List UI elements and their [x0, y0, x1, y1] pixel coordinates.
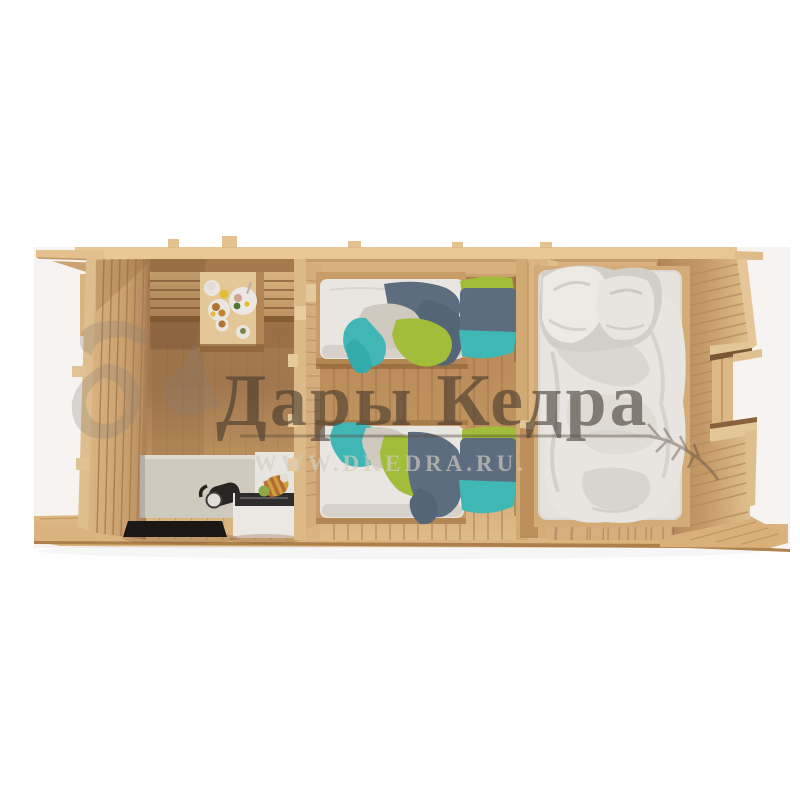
svg-text:WWW.DKEDRA.RU.: WWW.DKEDRA.RU.	[254, 451, 527, 476]
svg-text:Дары Кедра: Дары Кедра	[216, 360, 650, 442]
